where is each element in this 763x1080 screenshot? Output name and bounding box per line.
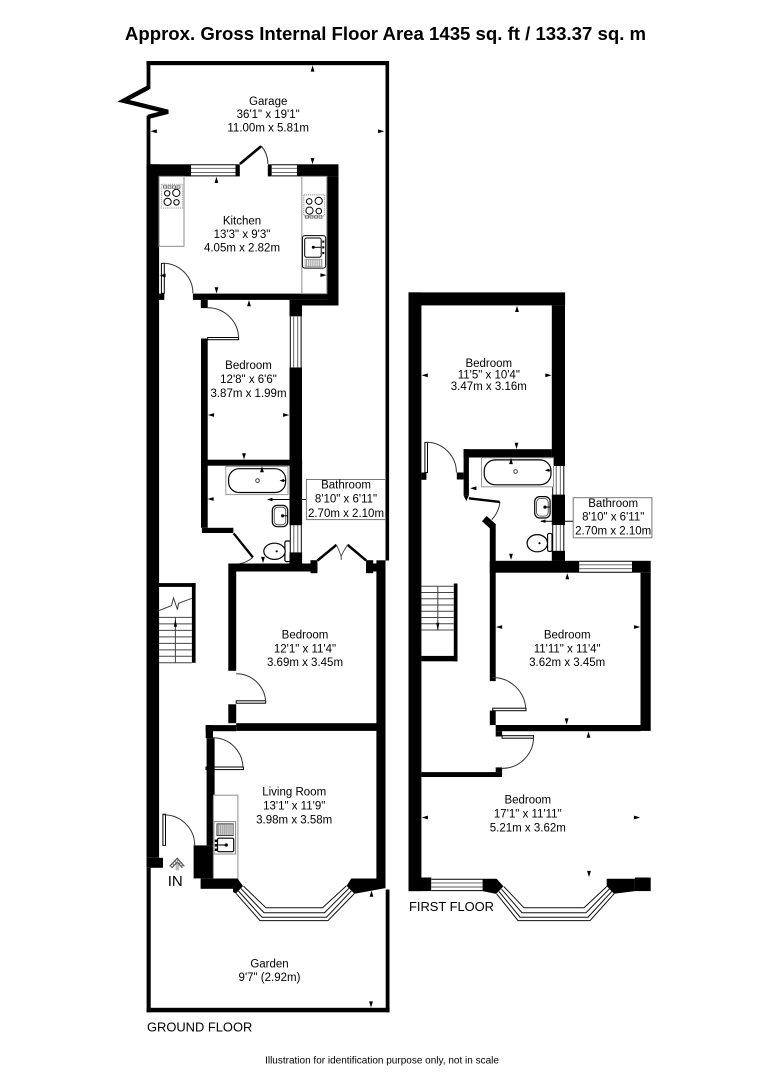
svg-text:Bathroom: Bathroom [321,480,371,492]
svg-text:13'3" x 9'3": 13'3" x 9'3" [214,229,271,241]
svg-text:Kitchen: Kitchen [223,215,261,227]
svg-text:Bedroom: Bedroom [544,630,591,642]
svg-text:12'1" x 11'4": 12'1" x 11'4" [274,644,336,656]
svg-text:2.70m x 2.10m: 2.70m x 2.10m [575,525,651,537]
svg-text:8'10" x 6'11": 8'10" x 6'11" [582,512,644,524]
svg-text:11'5" x 10'4": 11'5" x 10'4" [458,370,520,382]
svg-text:5.21m x 3.62m: 5.21m x 3.62m [490,823,566,835]
svg-text:Bedroom: Bedroom [282,630,329,642]
svg-text:9'7" (2.92m): 9'7" (2.92m) [239,972,301,984]
svg-text:Illustration for identificatio: Illustration for identification purpose … [265,1056,499,1067]
svg-text:3.98m x 3.58m: 3.98m x 3.58m [256,814,332,826]
svg-text:Approx. Gross Internal Floor A: Approx. Gross Internal Floor Area 1435 s… [125,23,646,44]
svg-text:Bedroom: Bedroom [504,795,551,807]
svg-text:IN: IN [168,873,183,890]
svg-text:Garden: Garden [250,958,288,970]
svg-text:Bedroom: Bedroom [225,360,272,372]
svg-text:4.05m x 2.82m: 4.05m x 2.82m [204,243,280,255]
svg-text:3.47m x 3.16m: 3.47m x 3.16m [451,381,527,393]
svg-text:2.70m x 2.10m: 2.70m x 2.10m [308,508,384,520]
svg-text:3.69m x 3.45m: 3.69m x 3.45m [267,657,343,669]
svg-text:Living Room: Living Room [262,786,326,798]
svg-text:13'1" x 11'9": 13'1" x 11'9" [263,800,325,812]
svg-text:FIRST FLOOR: FIRST FLOOR [409,899,494,914]
svg-text:17'1" x 11'11": 17'1" x 11'11" [494,809,562,821]
svg-text:3.62m x 3.45m: 3.62m x 3.45m [529,657,605,669]
svg-text:8'10" x 6'11": 8'10" x 6'11" [315,494,377,506]
svg-text:Garage: Garage [249,96,287,108]
svg-text:36'1" x 19'1": 36'1" x 19'1" [237,109,300,121]
svg-text:GROUND FLOOR: GROUND FLOOR [147,1020,252,1035]
svg-text:11.00m x 5.81m: 11.00m x 5.81m [227,122,309,134]
svg-text:Bathroom: Bathroom [588,498,638,510]
svg-text:Bedroom: Bedroom [465,358,512,370]
svg-text:11'11" x 11'4": 11'11" x 11'4" [534,644,601,656]
svg-text:12'8" x 6'6": 12'8" x 6'6" [220,374,277,386]
svg-text:3.87m x 1.99m: 3.87m x 1.99m [210,388,286,400]
